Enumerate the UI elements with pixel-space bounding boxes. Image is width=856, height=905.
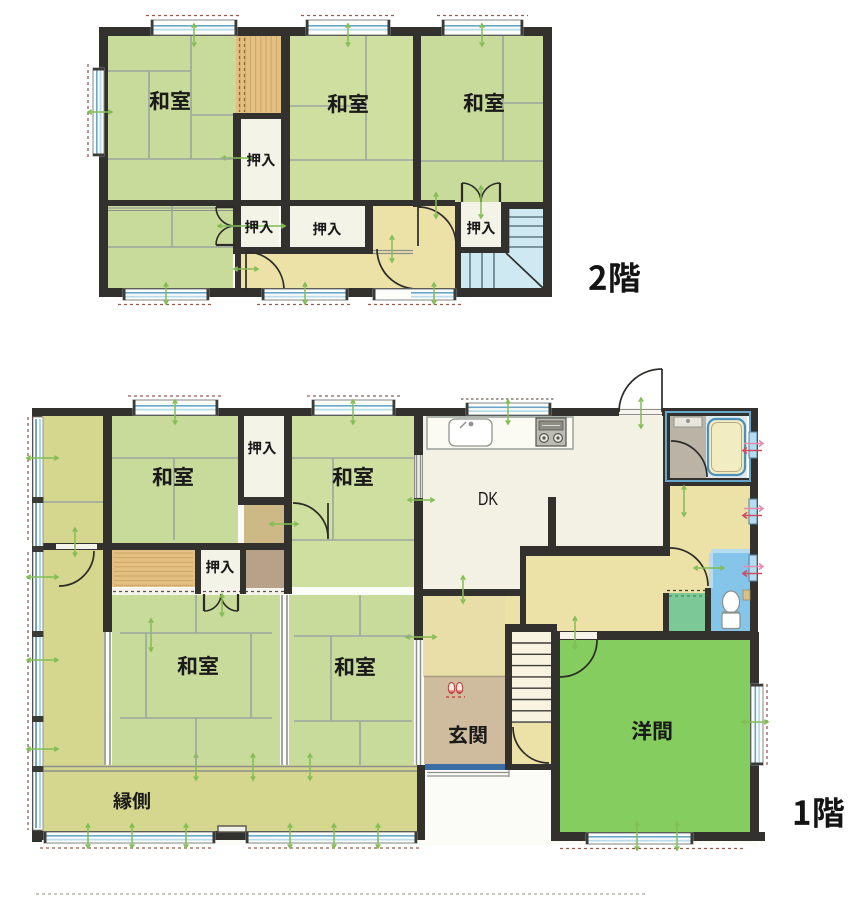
svg-text:DK: DK: [478, 489, 498, 509]
